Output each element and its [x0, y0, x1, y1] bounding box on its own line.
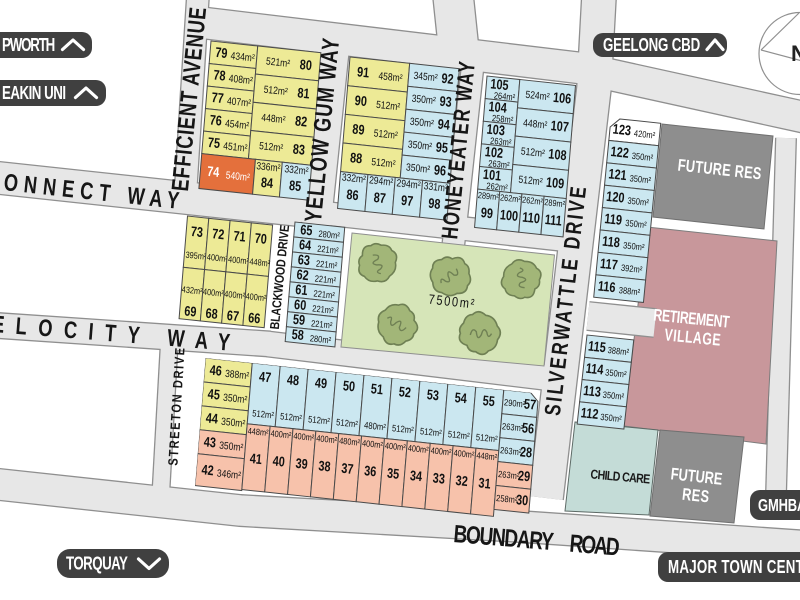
svg-text:120: 120: [606, 189, 626, 206]
svg-text:350m²: 350m²: [627, 195, 649, 208]
svg-text:512m²: 512m²: [280, 410, 303, 423]
svg-text:454m²: 454m²: [225, 118, 250, 133]
svg-text:58: 58: [291, 327, 304, 344]
svg-text:350m²: 350m²: [409, 116, 434, 131]
svg-text:RES: RES: [681, 485, 710, 507]
svg-text:350m²: 350m²: [629, 172, 651, 185]
svg-text:MAJOR TOWN CENTRE: MAJOR TOWN CENTRE: [668, 557, 800, 578]
svg-text:51: 51: [370, 381, 383, 398]
svg-text:106: 106: [552, 89, 571, 106]
svg-text:121: 121: [608, 166, 628, 183]
svg-text:350m²: 350m²: [625, 217, 647, 230]
svg-text:540m²: 540m²: [225, 170, 250, 185]
svg-text:98: 98: [428, 195, 441, 212]
svg-text:346m²: 346m²: [216, 468, 241, 483]
svg-text:350m²: 350m²: [605, 367, 628, 380]
svg-text:524m²: 524m²: [525, 89, 550, 104]
svg-text:33: 33: [432, 470, 445, 487]
svg-text:45: 45: [207, 386, 220, 403]
svg-text:480m²: 480m²: [364, 419, 387, 432]
svg-text:109: 109: [545, 174, 564, 191]
svg-text:79: 79: [215, 45, 228, 62]
svg-text:119: 119: [604, 211, 623, 228]
svg-text:55: 55: [482, 393, 495, 410]
svg-text:512m²: 512m²: [520, 146, 545, 161]
svg-text:434m²: 434m²: [230, 50, 255, 65]
svg-text:350m²: 350m²: [600, 411, 623, 424]
svg-text:512m²: 512m²: [420, 425, 443, 438]
svg-text:294m²: 294m²: [396, 177, 421, 192]
svg-text:350m²: 350m²: [219, 440, 244, 455]
svg-text:91: 91: [356, 64, 369, 81]
svg-text:50: 50: [342, 378, 355, 395]
svg-text:512m²: 512m²: [263, 84, 288, 99]
svg-text:350m²: 350m²: [221, 416, 246, 431]
svg-text:PWORTH: PWORTH: [2, 35, 55, 56]
svg-text:408m²: 408m²: [228, 73, 253, 88]
svg-text:32: 32: [455, 473, 468, 490]
svg-text:83: 83: [292, 141, 305, 158]
svg-text:ROAD: ROAD: [569, 529, 621, 561]
svg-text:57: 57: [523, 396, 536, 413]
svg-text:350m²: 350m²: [223, 392, 248, 407]
svg-text:41: 41: [249, 451, 262, 468]
svg-text:40: 40: [272, 453, 285, 470]
svg-text:90: 90: [354, 93, 367, 110]
svg-text:87: 87: [373, 190, 386, 207]
svg-text:117: 117: [599, 256, 618, 273]
svg-text:392m²: 392m²: [620, 262, 642, 275]
svg-text:GEELONG CBD: GEELONG CBD: [603, 35, 700, 56]
svg-text:512m²: 512m²: [252, 408, 275, 421]
svg-text:36: 36: [364, 463, 377, 480]
svg-text:512m²: 512m²: [308, 413, 331, 426]
svg-text:350m²: 350m²: [631, 150, 653, 163]
svg-text:221m²: 221m²: [317, 243, 339, 256]
svg-text:75: 75: [207, 135, 220, 152]
svg-text:512m²: 512m²: [376, 99, 401, 114]
svg-text:78: 78: [213, 67, 226, 84]
svg-text:123: 123: [612, 121, 632, 138]
svg-text:332m²: 332m²: [341, 172, 366, 187]
svg-text:74: 74: [207, 164, 220, 181]
svg-text:49: 49: [314, 375, 327, 392]
svg-text:GMHBA BU: GMHBA BU: [758, 496, 800, 516]
svg-text:294m²: 294m²: [369, 175, 394, 190]
svg-text:84: 84: [260, 175, 273, 192]
svg-text:81: 81: [297, 85, 310, 102]
svg-text:116: 116: [597, 278, 616, 295]
svg-text:29: 29: [517, 468, 530, 485]
svg-text:263m²: 263m²: [498, 468, 520, 481]
svg-text:67: 67: [226, 308, 239, 325]
svg-text:458m²: 458m²: [378, 70, 403, 85]
svg-text:73: 73: [190, 224, 203, 241]
svg-text:100: 100: [499, 207, 518, 224]
svg-text:35: 35: [386, 465, 399, 482]
svg-text:86: 86: [346, 187, 359, 204]
svg-text:66: 66: [248, 310, 261, 327]
svg-text:336m²: 336m²: [256, 160, 281, 175]
svg-text:28: 28: [519, 444, 532, 461]
svg-text:512m²: 512m²: [371, 156, 396, 171]
svg-text:38: 38: [318, 458, 331, 475]
svg-text:77: 77: [211, 90, 224, 107]
svg-text:89: 89: [352, 121, 365, 138]
svg-text:388m²: 388m²: [225, 368, 250, 383]
svg-text:44: 44: [205, 410, 218, 427]
svg-text:115: 115: [587, 338, 606, 355]
svg-text:512m²: 512m²: [392, 422, 415, 435]
svg-text:512m²: 512m²: [518, 174, 543, 189]
svg-text:EAKIN UNI: EAKIN UNI: [2, 83, 66, 104]
svg-text:350m²: 350m²: [602, 389, 625, 402]
svg-text:42: 42: [201, 462, 214, 479]
svg-text:69: 69: [184, 303, 197, 320]
svg-text:263m²: 263m²: [500, 444, 522, 457]
svg-text:46: 46: [209, 362, 222, 379]
svg-text:290m²: 290m²: [504, 397, 526, 410]
svg-text:68: 68: [205, 305, 218, 322]
svg-text:70: 70: [254, 230, 267, 247]
svg-text:407m²: 407m²: [226, 95, 251, 110]
svg-text:451m²: 451m²: [223, 140, 248, 155]
svg-text:221m²: 221m²: [312, 303, 334, 316]
svg-text:71: 71: [233, 228, 246, 245]
svg-text:30: 30: [515, 492, 528, 509]
svg-text:118: 118: [602, 233, 621, 250]
svg-text:53: 53: [426, 387, 439, 404]
svg-text:512m²: 512m²: [336, 416, 359, 429]
svg-text:43: 43: [203, 434, 216, 451]
svg-text:122: 122: [610, 144, 630, 161]
svg-text:92: 92: [441, 70, 454, 87]
svg-text:108: 108: [548, 146, 567, 163]
svg-text:99: 99: [480, 205, 493, 222]
svg-text:448m²: 448m²: [523, 117, 548, 132]
svg-text:82: 82: [295, 113, 308, 130]
svg-text:512m²: 512m²: [373, 128, 398, 143]
svg-text:52: 52: [398, 384, 411, 401]
svg-text:76: 76: [209, 112, 222, 129]
svg-text:97: 97: [401, 193, 414, 210]
svg-text:54: 54: [454, 390, 467, 407]
svg-text:113: 113: [583, 383, 602, 400]
svg-text:56: 56: [521, 420, 534, 437]
svg-text:512m²: 512m²: [447, 428, 470, 441]
svg-text:112: 112: [580, 405, 599, 422]
svg-text:93: 93: [439, 93, 452, 110]
svg-text:37: 37: [341, 460, 354, 477]
svg-text:350m²: 350m²: [411, 93, 436, 108]
svg-text:TORQUAY: TORQUAY: [66, 553, 128, 574]
svg-text:221m²: 221m²: [314, 273, 336, 286]
svg-text:388m²: 388m²: [607, 344, 630, 357]
svg-text:350m²: 350m²: [623, 240, 645, 253]
svg-text:221m²: 221m²: [313, 288, 335, 301]
svg-text:110: 110: [522, 209, 541, 226]
svg-text:280m²: 280m²: [318, 228, 340, 241]
svg-text:512m²: 512m²: [259, 140, 284, 155]
svg-text:48: 48: [286, 372, 299, 389]
svg-text:72: 72: [212, 226, 225, 243]
svg-text:47: 47: [258, 369, 271, 386]
svg-text:263m²: 263m²: [502, 420, 524, 433]
svg-text:521m²: 521m²: [266, 56, 291, 71]
svg-text:114: 114: [585, 360, 604, 377]
svg-text:280m²: 280m²: [309, 333, 331, 346]
svg-text:350m²: 350m²: [407, 139, 432, 154]
svg-text:345m²: 345m²: [413, 70, 438, 85]
svg-text:39: 39: [295, 456, 308, 473]
svg-text:420m²: 420m²: [633, 128, 655, 141]
svg-text:111: 111: [544, 212, 562, 229]
svg-text:512m²: 512m²: [475, 431, 498, 444]
svg-text:350m²: 350m²: [406, 162, 431, 177]
svg-text:80: 80: [299, 57, 312, 74]
svg-text:221m²: 221m²: [311, 318, 333, 331]
svg-text:88: 88: [349, 150, 362, 167]
svg-text:448m²: 448m²: [261, 112, 286, 127]
svg-text:31: 31: [478, 475, 491, 492]
svg-text:107: 107: [550, 118, 569, 135]
svg-text:85: 85: [288, 178, 301, 195]
svg-text:388m²: 388m²: [618, 284, 640, 297]
svg-text:258m²: 258m²: [496, 492, 518, 505]
svg-text:221m²: 221m²: [316, 258, 338, 271]
svg-text:34: 34: [409, 468, 422, 485]
svg-text:N: N: [791, 41, 800, 66]
